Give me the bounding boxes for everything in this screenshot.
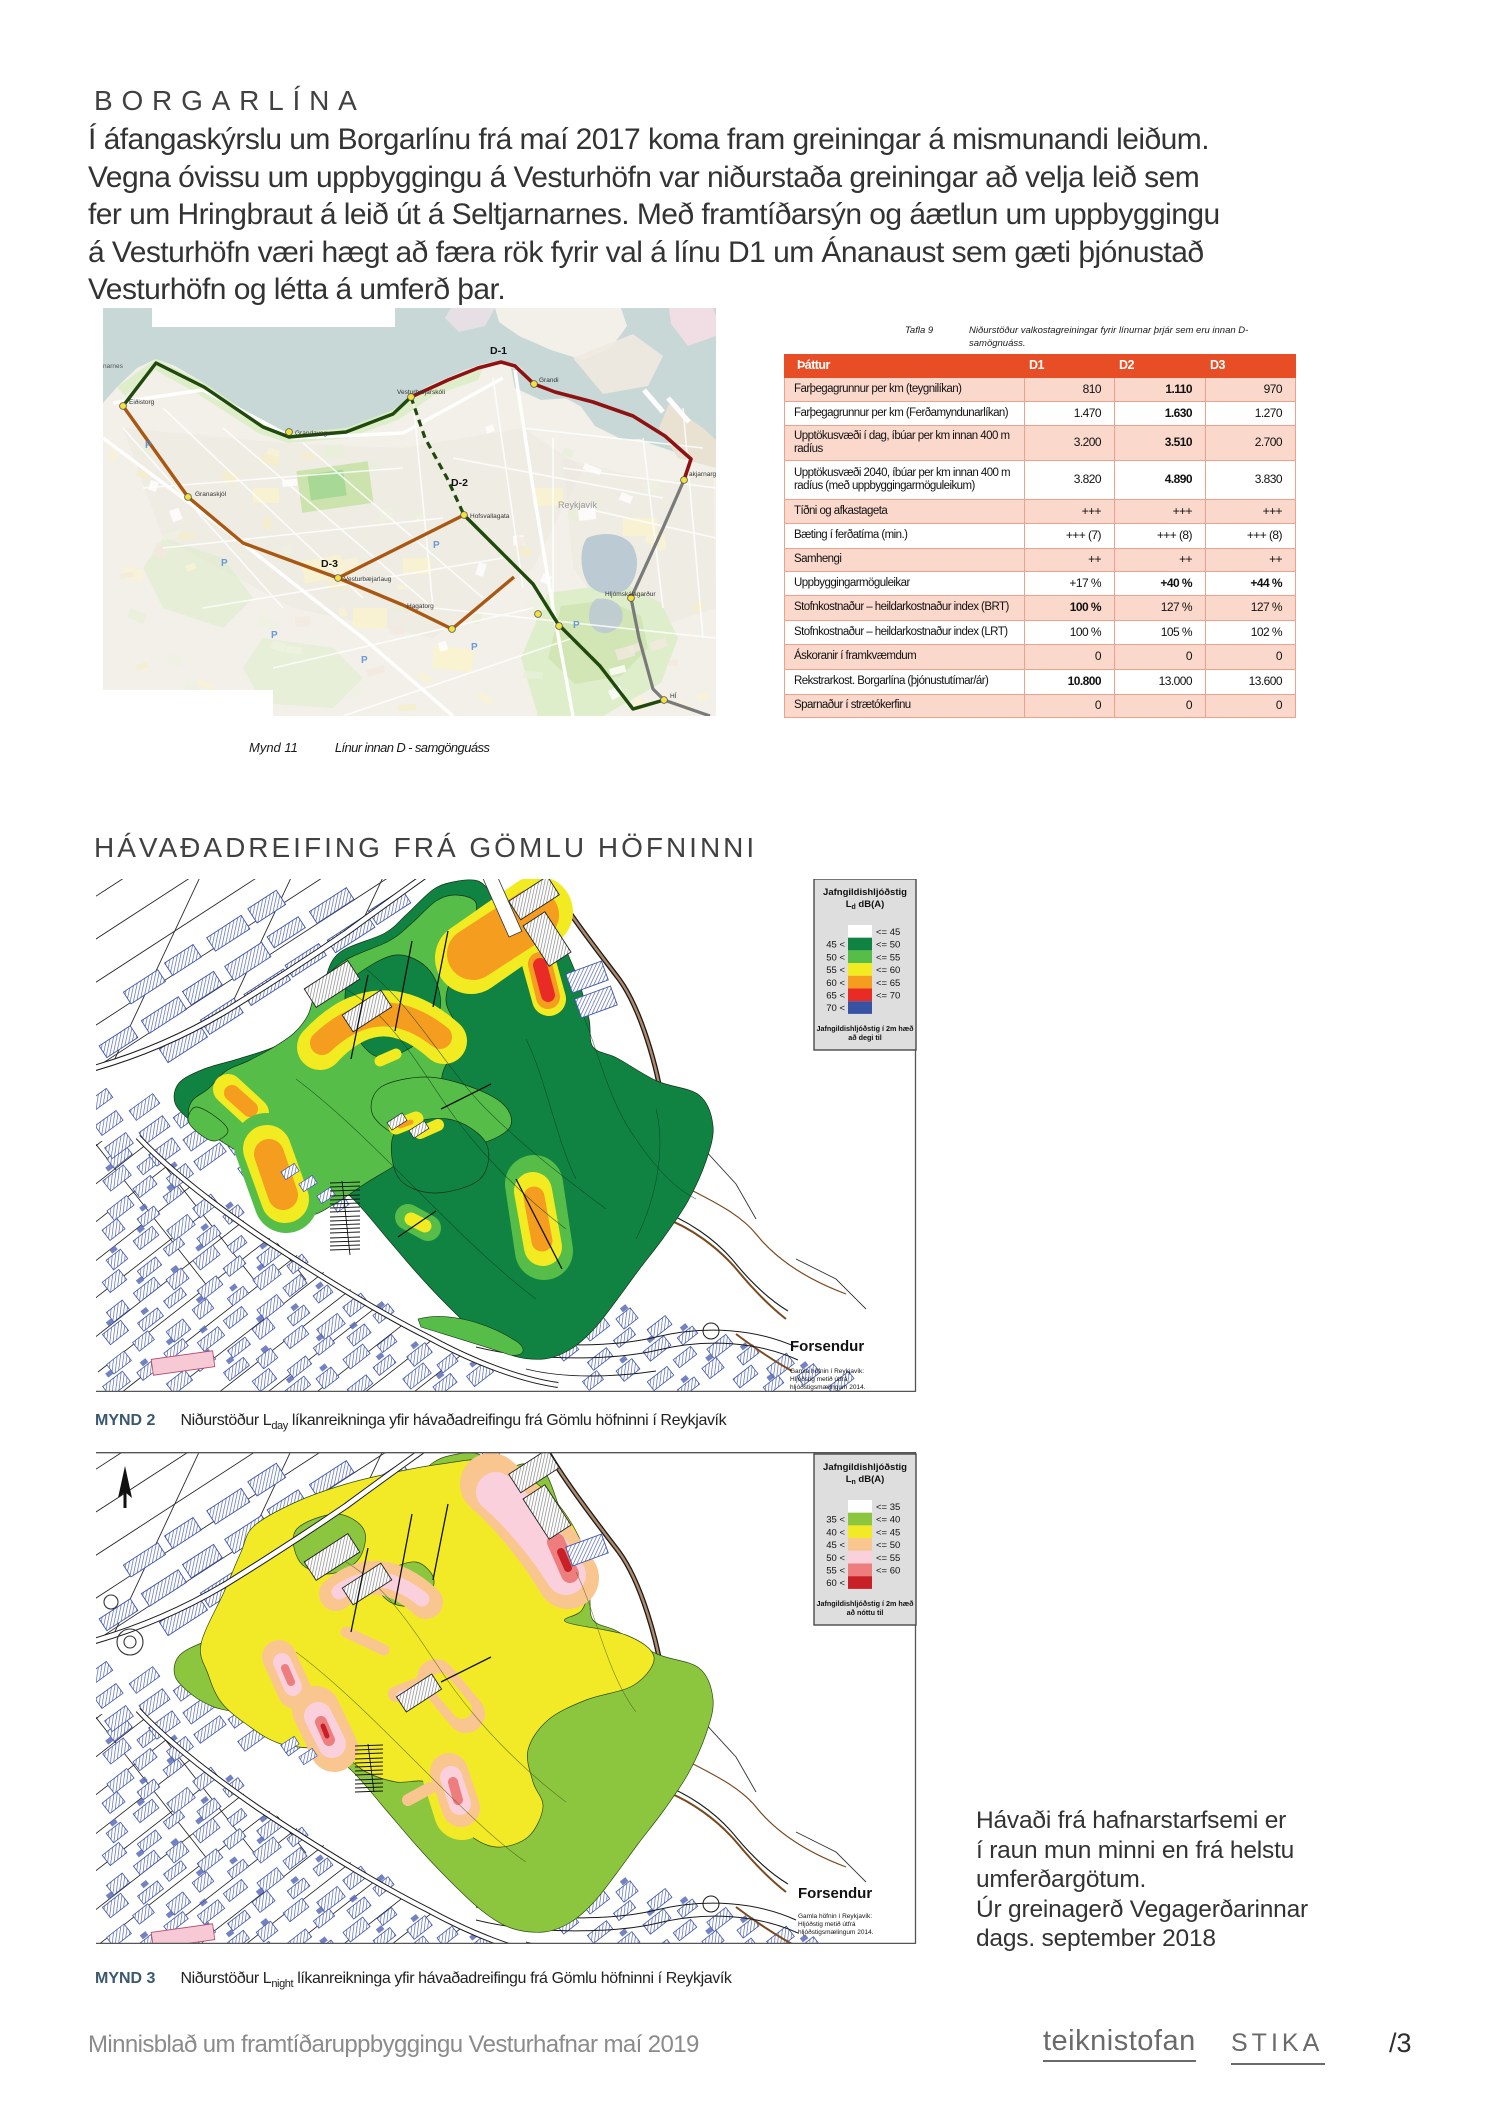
svg-text:<= 55: <= 55 [876,1553,900,1564]
svg-text:60 <: 60 < [826,978,845,989]
svg-text:55 <: 55 < [826,965,845,976]
svg-text:hljóðstigsmælingum 2014.: hljóðstigsmælingum 2014. [798,1928,874,1936]
svg-text:<= 55: <= 55 [876,952,900,963]
svg-text:<= 65: <= 65 [876,978,900,989]
svg-text:Hljóðstig metið útfrá: Hljóðstig metið útfrá [798,1920,856,1928]
svg-text:P: P [145,440,152,451]
svg-text:Hofsvallagata: Hofsvallagata [470,513,510,520]
svg-text:50 <: 50 < [826,952,845,963]
svg-text:Reykjavík: Reykjavík [558,500,598,510]
svg-text:D-2: D-2 [451,477,468,489]
svg-text:að nóttu til: að nóttu til [847,1608,884,1617]
svg-text:70 <: 70 < [826,1003,845,1014]
svg-text:HÍ: HÍ [670,691,677,700]
svg-text:40 <: 40 < [826,1527,845,1538]
svg-text:<= 45: <= 45 [876,927,900,938]
svg-text:P: P [361,655,368,666]
svg-text:akjarnarg: akjarnarg [689,471,716,478]
svg-text:Jafngildishljóðstig í 2m hæð: Jafngildishljóðstig í 2m hæð [816,1024,914,1033]
svg-text:55 <: 55 < [826,1566,845,1577]
svg-text:Gamla höfnin í Reykjavík:: Gamla höfnin í Reykjavík: [798,1913,872,1920]
svg-text:<= 50: <= 50 [876,940,900,951]
svg-text:Forsendur: Forsendur [798,1885,872,1902]
svg-text:P: P [271,630,278,641]
svg-text:Jafngildishljóðstig: Jafngildishljóðstig [823,1462,907,1473]
svg-text:<= 70: <= 70 [876,991,900,1002]
svg-text:60 <: 60 < [826,1578,845,1589]
svg-text:P: P [471,642,478,653]
svg-text:Grandavegur: Grandavegur [295,430,334,437]
svg-text:<= 60: <= 60 [876,1566,900,1577]
svg-text:35 <: 35 < [826,1515,845,1526]
svg-text:Hljómskálagarður: Hljómskálagarður [605,590,656,598]
svg-text:Granaskjól: Granaskjól [195,491,227,498]
svg-text:hljóðstigsmælingum 2014.: hljóðstigsmælingum 2014. [790,1383,866,1391]
svg-text:að degi til: að degi til [848,1033,882,1042]
svg-text:Ln dB(A): Ln dB(A) [846,1474,885,1486]
svg-text:D-3: D-3 [321,558,338,570]
svg-text:Jafngildishljóðstig: Jafngildishljóðstig [823,887,907,898]
svg-text:<= 45: <= 45 [876,1527,900,1538]
svg-text:<= 40: <= 40 [876,1515,900,1526]
svg-text:Ld dB(A): Ld dB(A) [846,899,885,911]
svg-text:Hljóðstig metið útfrá: Hljóðstig metið útfrá [790,1375,848,1383]
svg-text:P: P [573,620,580,631]
svg-text:P: P [221,558,228,569]
svg-text:65 <: 65 < [826,991,845,1002]
svg-text:narnes: narnes [103,363,124,370]
svg-text:50 <: 50 < [826,1553,845,1564]
svg-text:Grandi: Grandi [539,377,559,384]
svg-text:<= 60: <= 60 [876,965,900,976]
svg-text:45 <: 45 < [826,1540,845,1551]
svg-text:45 <: 45 < [826,940,845,951]
svg-text:<= 50: <= 50 [876,1540,900,1551]
svg-text:P: P [433,540,440,551]
svg-text:Jafngildishljóðstig í 2m hæð: Jafngildishljóðstig í 2m hæð [816,1599,914,1608]
svg-text:Eiðistorg: Eiðistorg [129,398,155,406]
svg-text:Vesturbæjarlaug: Vesturbæjarlaug [344,576,392,583]
svg-text:Forsendur: Forsendur [790,1338,864,1355]
svg-text:<= 35: <= 35 [876,1502,900,1513]
svg-text:Hagatorg: Hagatorg [407,603,434,610]
svg-text:Gamla höfnin í Reykjavík:: Gamla höfnin í Reykjavík: [790,1368,864,1375]
svg-text:Vesturbæjarskóli: Vesturbæjarskóli [397,389,445,396]
svg-text:D-1: D-1 [490,345,507,357]
